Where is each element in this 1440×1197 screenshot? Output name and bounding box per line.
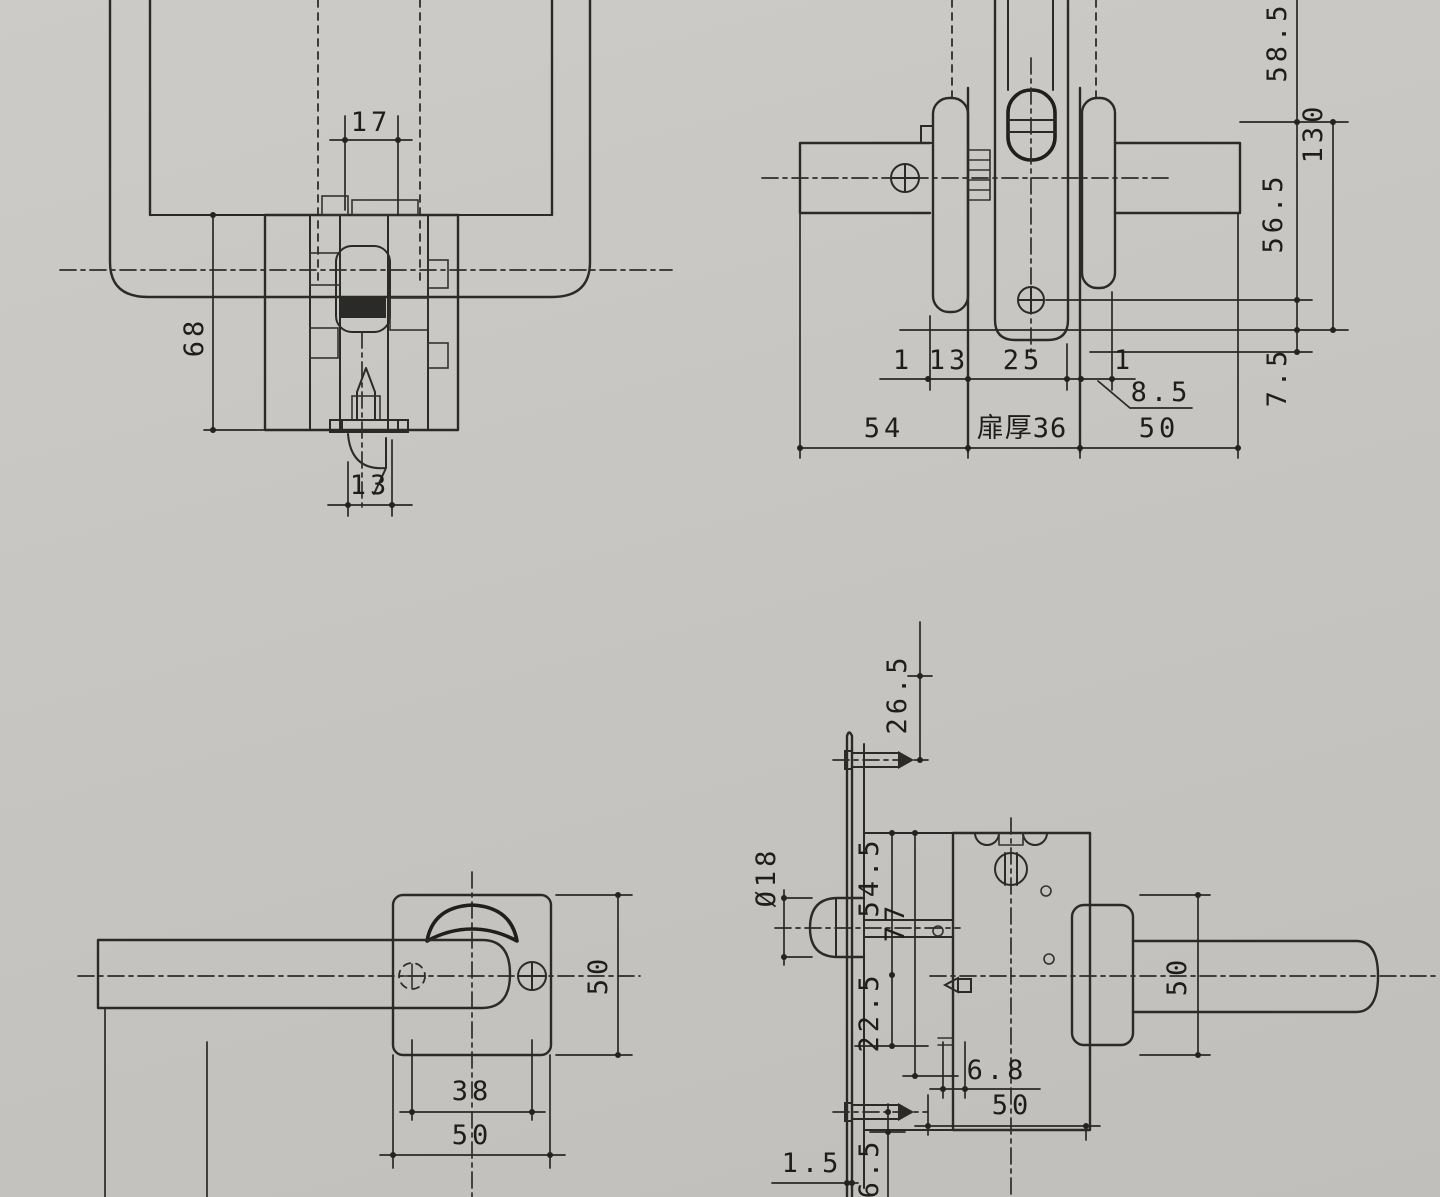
outside-rose (921, 98, 968, 312)
dim-label-6.5: 6.5 (854, 1138, 885, 1197)
dim-label-8.5: 8.5 (1131, 377, 1192, 408)
spindle-splines (968, 150, 990, 200)
dim-label-door-thickness: 扉厚36 (977, 413, 1068, 444)
dimension-bottom-margin: 6.5 (854, 1104, 905, 1197)
inside-rose (1082, 98, 1115, 288)
lever-grip-front (98, 940, 510, 1008)
dim-label-38: 38 (452, 1076, 493, 1107)
dim-label-25: 25 (1003, 345, 1044, 376)
dim-label-1-right: 1 (1114, 345, 1134, 376)
dim-label-13-rose: 13 (929, 345, 970, 376)
dim-label-50-height: 50 (583, 955, 614, 996)
dim-label-58.5: 58.5 (1262, 1, 1293, 82)
dim-label-50-width: 50 (452, 1120, 493, 1151)
dim-label-1.5: 1.5 (782, 1148, 843, 1179)
dim-label-77: 77 (880, 902, 911, 943)
dimension-latch-diameter: Ø18 (751, 847, 812, 965)
dim-label-68: 68 (179, 317, 210, 358)
dim-label-56.5: 56.5 (1258, 172, 1289, 253)
outside-screw (891, 164, 919, 192)
screw-right (518, 962, 546, 990)
dim-label-13: 13 (350, 470, 391, 501)
view-side-bottom: 26.5 Ø18 54.5 22.5 77 50 6.8 (751, 622, 1437, 1197)
drawing-canvas: 17 68 13 (0, 0, 1440, 1197)
dim-label-6.8: 6.8 (967, 1055, 1028, 1086)
dim-label-130: 130 (1298, 103, 1329, 164)
dim-label-54: 54 (864, 413, 905, 444)
scanned-drawing-page: { "document": { "kind": "scanned lockset… (0, 0, 1440, 1197)
dimension-faceplate-thickness: 1.5 (772, 1148, 858, 1186)
dim-label-dia18: Ø18 (751, 847, 782, 908)
view-plan-top: 17 68 13 (60, 0, 672, 516)
dimension-latch-width: 13 (328, 440, 412, 516)
center-screw (1018, 287, 1044, 313)
dimension-grip-width: 17 (330, 107, 412, 215)
faceplate-edge (847, 733, 864, 1197)
dim-label-50-backset: 50 (992, 1090, 1033, 1121)
dim-label-1-left: 1 (893, 345, 913, 376)
dimension-row-bottom: 54 扉厚36 50 (797, 213, 1241, 458)
dim-label-7.5: 7.5 (1262, 347, 1293, 408)
dimension-top-screw: 26.5 (882, 622, 932, 763)
dim-label-17: 17 (351, 107, 392, 138)
dim-label-50-lever: 50 (1162, 956, 1193, 997)
dim-label-50-inside: 50 (1139, 413, 1180, 444)
dimension-lever-height: 50 (1140, 892, 1210, 1058)
view-front-bottom: 38 50 50 (78, 872, 640, 1197)
dim-label-22.5: 22.5 (854, 971, 885, 1052)
hidden-screw-left (399, 963, 425, 989)
view-section-top: 58.5 130 56.5 7.5 1 13 25 1 8.5 54 扉厚36 … (762, 0, 1348, 458)
dimension-row-mid: 1 13 25 1 8.5 (880, 292, 1192, 408)
dim-label-26.5: 26.5 (882, 653, 913, 734)
dimension-plate-height: 50 (556, 892, 632, 1058)
